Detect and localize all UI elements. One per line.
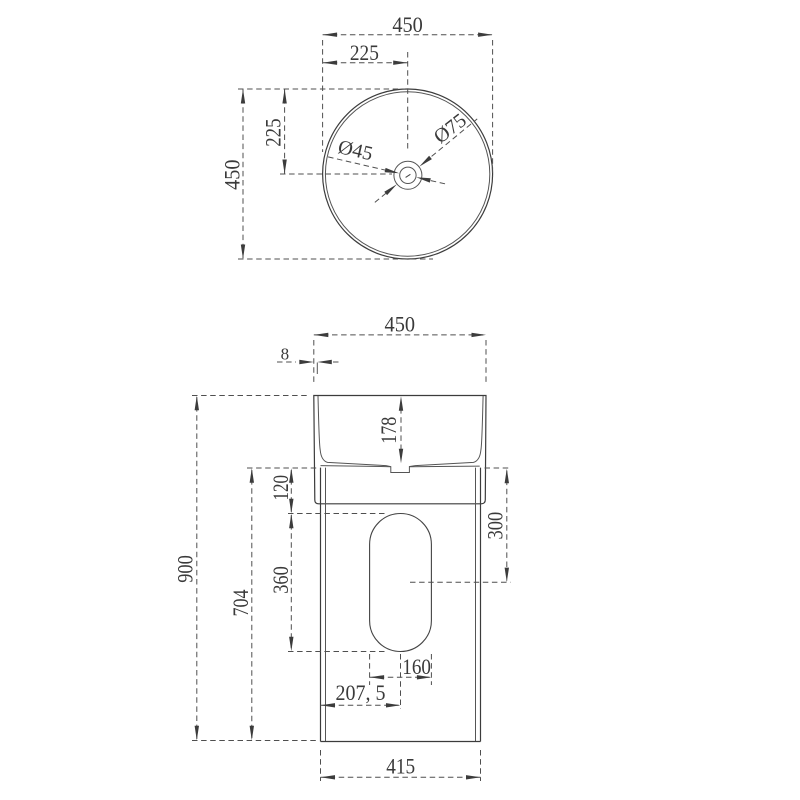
svg-text:120: 120 — [268, 475, 293, 501]
svg-text:415: 415 — [386, 754, 415, 779]
svg-text:8: 8 — [281, 345, 290, 364]
svg-text:178: 178 — [376, 417, 401, 444]
svg-text:360: 360 — [268, 566, 293, 594]
svg-text:160: 160 — [402, 654, 431, 679]
svg-text:225: 225 — [260, 118, 285, 146]
svg-text:900: 900 — [173, 555, 198, 583]
svg-text:450: 450 — [385, 311, 416, 336]
svg-text:450: 450 — [392, 12, 423, 37]
svg-text:225: 225 — [350, 40, 379, 65]
svg-text:450: 450 — [219, 160, 244, 190]
svg-text:Ø45: Ø45 — [336, 136, 375, 165]
svg-text:300: 300 — [483, 512, 508, 540]
svg-text:207, 5: 207, 5 — [336, 680, 386, 705]
svg-text:704: 704 — [228, 590, 253, 617]
